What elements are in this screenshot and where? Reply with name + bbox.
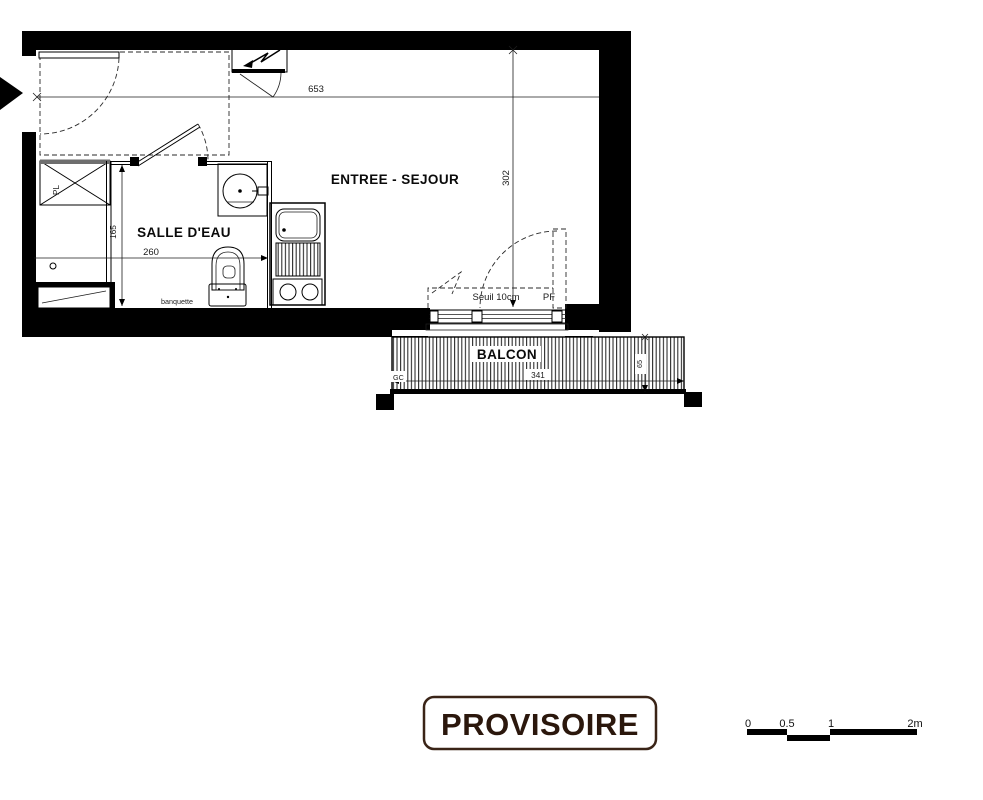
balcony-pier-left <box>376 394 394 410</box>
hob-ring <box>280 284 296 300</box>
dim-text-165: 165 <box>109 225 118 239</box>
electrical-zigzag-icon <box>249 50 280 64</box>
bottom-wall-left-thick <box>22 308 392 337</box>
bottom-wall-right <box>565 304 631 330</box>
exterior-walls <box>22 31 631 341</box>
balcony-pier-right <box>684 392 702 407</box>
window-mullion <box>472 311 482 322</box>
washbasin-drain <box>238 189 242 193</box>
entry-arrow-icon <box>0 77 23 110</box>
threshold-label: Seuil 10cm <box>473 292 520 303</box>
toilet-bolt <box>218 288 220 290</box>
closet-pl: PL <box>40 160 110 206</box>
closet-top-rail <box>40 160 110 165</box>
toilet-trap <box>223 266 235 278</box>
dim-text-260: 260 <box>143 247 159 258</box>
ceiling-soffit-dashed <box>40 52 229 155</box>
door-jamb <box>198 157 207 166</box>
closet-label: PL <box>52 185 61 195</box>
balcony-label: BALCON <box>477 347 537 362</box>
kitchen-sink <box>276 209 320 241</box>
bathroom-door-leaf <box>136 124 198 163</box>
dimension-653: 653 <box>33 84 599 101</box>
electrical-cabinet <box>232 44 287 97</box>
dim-text-balcony-depth: 65 <box>635 360 644 368</box>
scale-segment-upper-1 <box>747 729 787 735</box>
scale-tick-0: 0 <box>745 718 751 730</box>
scale-tick-1: 1 <box>828 718 834 730</box>
stamp-label: PROVISOIRE <box>441 707 639 742</box>
provisional-stamp: PROVISOIRE <box>424 697 656 749</box>
kitchen-sink-inner <box>279 212 317 238</box>
french-window: Seuil 10cm PF <box>426 229 568 330</box>
window-frame <box>429 310 566 323</box>
cabinet-door-leaf <box>240 74 273 97</box>
floor-plan-page: 653 302 PL <box>0 0 983 800</box>
bench <box>38 287 110 308</box>
toilet-tank <box>209 284 246 306</box>
entry-door-swing <box>40 58 119 134</box>
right-wall <box>599 31 631 332</box>
dim-arrow <box>261 255 268 261</box>
bathroom-label: SALLE D'EAU <box>137 225 231 240</box>
window-mullion <box>430 311 438 322</box>
kitchen-drainer <box>276 243 320 276</box>
dimension-302: 302 <box>501 46 517 307</box>
dim-text-653: 653 <box>308 84 324 95</box>
washbasin <box>218 164 268 216</box>
hob-ring <box>302 284 318 300</box>
bench-label: banquette <box>161 297 193 306</box>
dim-arrow <box>119 299 125 306</box>
left-wall-top-block <box>22 31 36 56</box>
cabinet-sill <box>232 69 285 73</box>
pf-label: PF <box>543 292 555 303</box>
top-wall <box>22 31 631 50</box>
sink-drain <box>282 228 286 232</box>
gc-label: GC <box>393 373 404 382</box>
scale-tick-05: 0.5 <box>779 718 794 730</box>
window-sill <box>426 324 568 330</box>
toilet <box>209 247 246 306</box>
balcony: BALCON 341 GC 65 <box>376 334 702 410</box>
electrical-arrowhead <box>243 60 253 68</box>
scale-segment-upper-2 <box>830 729 917 735</box>
toilet-button <box>227 296 229 298</box>
balcony-front-rail <box>390 389 686 394</box>
scale-tick-2m: 2m <box>907 718 922 730</box>
pf-tilt-symbol <box>432 272 461 294</box>
living-room-label: ENTREE - SEJOUR <box>331 172 459 187</box>
toilet-bolt <box>235 288 237 290</box>
dim-text-302: 302 <box>501 170 512 186</box>
floor-drain <box>50 263 56 269</box>
entry-door-leaf <box>39 52 119 58</box>
cabinet-door-swing <box>273 73 281 97</box>
scale-segment-lower <box>787 735 830 741</box>
dim-text-341: 341 <box>531 371 545 380</box>
window-mullion <box>552 311 562 322</box>
kitchenette <box>270 203 325 305</box>
scale-bar: 0 0.5 1 2m <box>745 718 923 741</box>
bathroom-door-leaf <box>138 127 200 166</box>
dim-arrow <box>119 165 125 172</box>
floor-plan-drawing: 653 302 PL <box>0 0 983 800</box>
